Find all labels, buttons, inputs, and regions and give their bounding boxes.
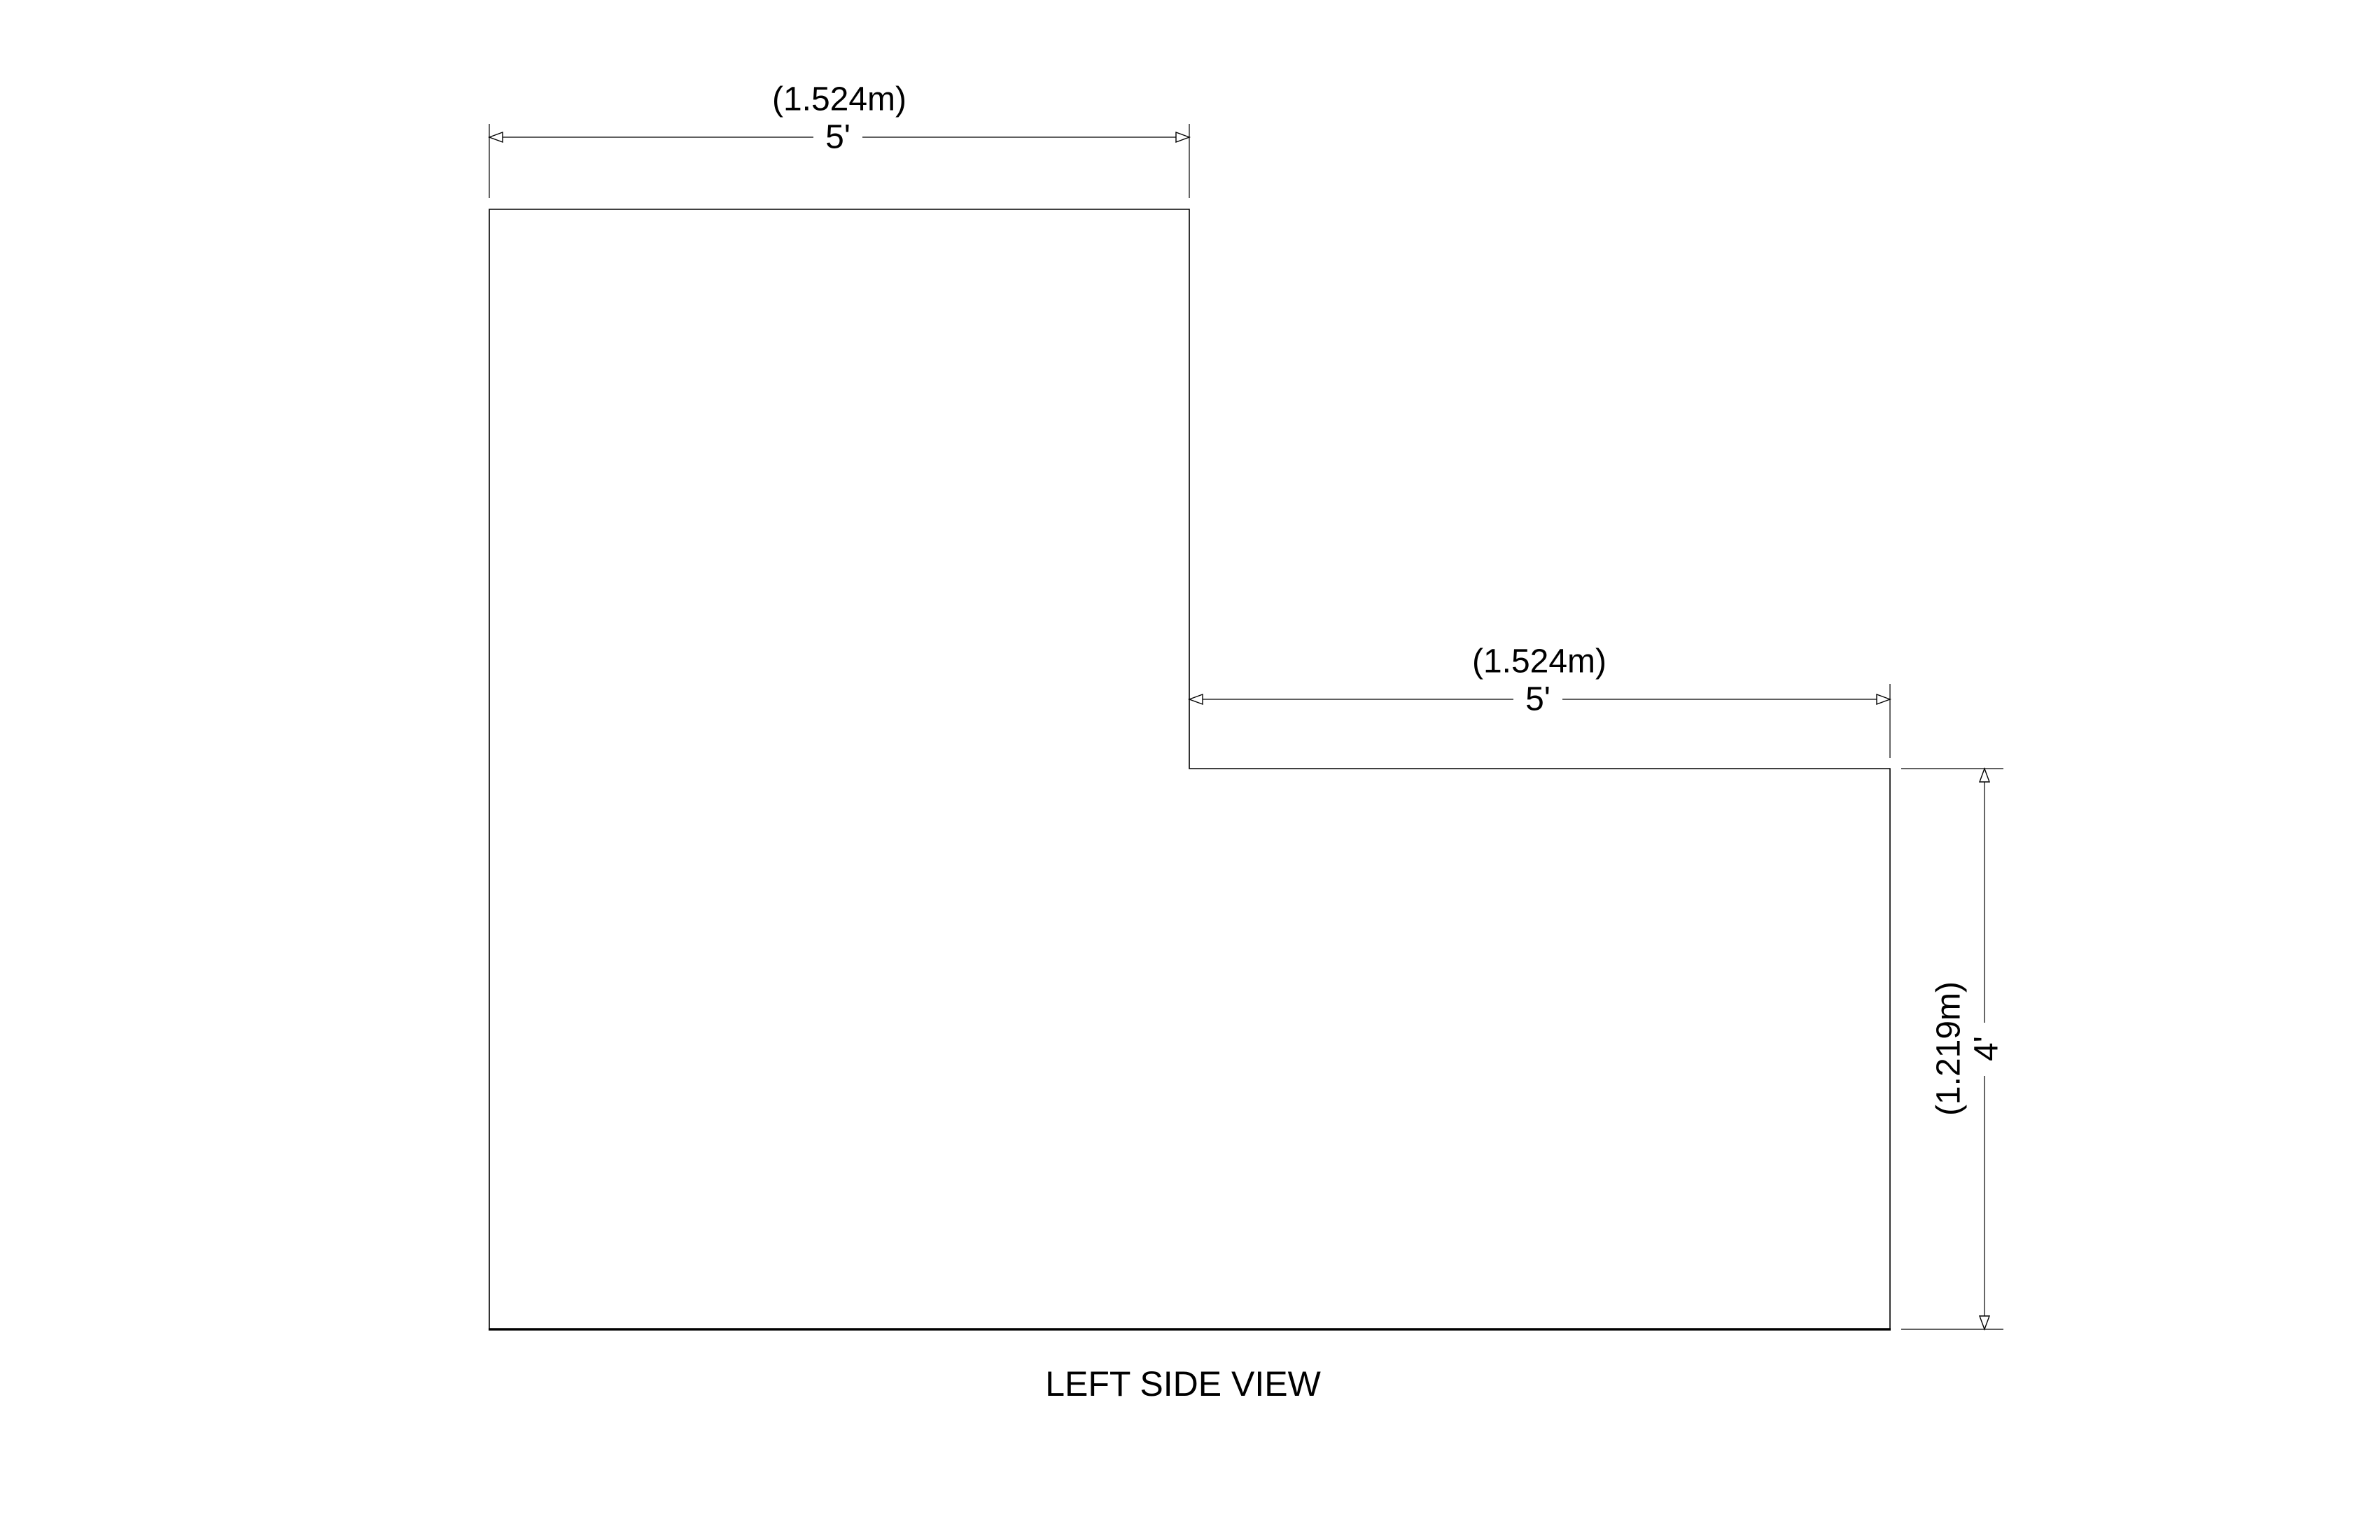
arrowhead-left-icon xyxy=(489,132,503,142)
dimension-metric-label: (1.219m) xyxy=(1931,981,1968,1116)
arrowhead-up-icon xyxy=(1980,769,1989,782)
dimension-imperial-label: 4' xyxy=(1968,1036,2005,1061)
arrowhead-right-icon xyxy=(1176,132,1189,142)
dimension-top-width: (1.524m) 5' xyxy=(489,81,1189,199)
dimension-metric-label: (1.524m) xyxy=(772,81,906,118)
dimension-right-height: (1.219m) 4' xyxy=(1901,769,2005,1329)
dimension-imperial-label: 5' xyxy=(1525,681,1550,718)
arrowhead-right-icon xyxy=(1877,694,1890,704)
dimension-metric-label: (1.524m) xyxy=(1472,643,1606,680)
drawing-canvas: (1.524m) 5' (1.524m) 5' (1.219m) 4' LEFT… xyxy=(0,0,2380,1540)
dimension-imperial-label: 5' xyxy=(825,119,850,156)
part-outline xyxy=(489,209,1890,1329)
arrowhead-left-icon xyxy=(1189,694,1203,704)
arrowhead-down-icon xyxy=(1980,1316,1989,1329)
dimension-step-width: (1.524m) 5' xyxy=(1189,643,1890,759)
cad-left-side-view-drawing: (1.524m) 5' (1.524m) 5' (1.219m) 4' LEFT… xyxy=(0,0,2380,1540)
view-title-label: LEFT SIDE VIEW xyxy=(1045,1364,1321,1403)
